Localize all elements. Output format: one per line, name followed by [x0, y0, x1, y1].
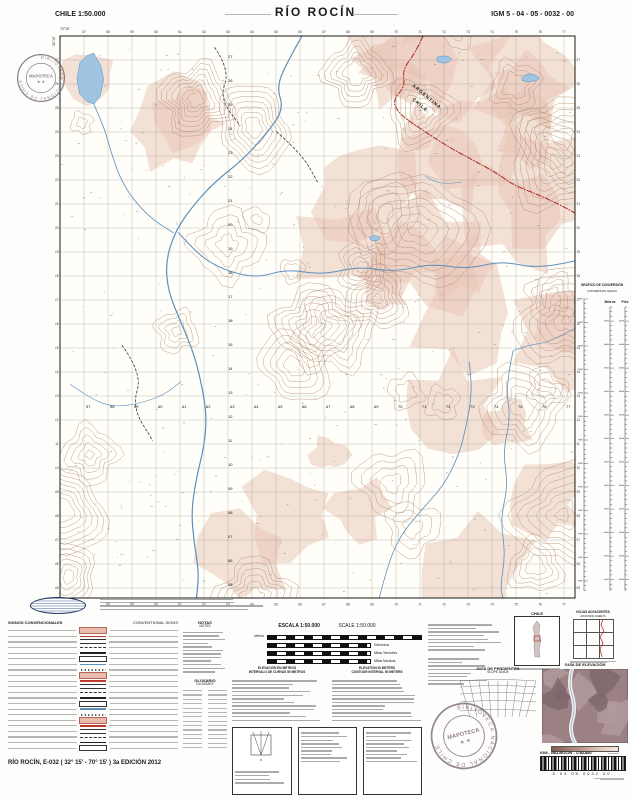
map-speckle — [559, 307, 561, 308]
scale-bars: MetrosKilómetrosMillas TerrestresMillas … — [232, 635, 422, 665]
map-speckle — [456, 486, 458, 487]
grid-label-easting: 61 — [182, 404, 187, 409]
margin-label-bottom: 75 — [514, 603, 518, 607]
placeholder-text-line — [232, 705, 316, 706]
map-speckle — [303, 247, 304, 248]
placeholder-text-line — [428, 649, 485, 650]
margin-label-right: 24 — [577, 130, 581, 134]
grid-label-northing: 12 — [228, 414, 233, 419]
map-speckle — [73, 351, 74, 352]
map-speckle — [135, 143, 137, 144]
grid-label-northing: 10 — [228, 462, 233, 467]
map-speckle — [500, 177, 501, 178]
glossary-title-en: GLOSSARY — [183, 683, 227, 687]
map-speckle — [163, 166, 165, 167]
map-speckle — [309, 267, 311, 268]
map-speckle — [437, 513, 438, 514]
map-sheet-page: { "header": { "country_scale": "CHILE 1:… — [0, 0, 631, 800]
map-speckle — [243, 574, 244, 575]
map-speckle — [234, 139, 236, 140]
map-speckle — [176, 224, 177, 225]
map-speckle — [322, 535, 323, 536]
conversion-tick-label — [604, 344, 609, 345]
map-speckle — [448, 205, 450, 206]
legend-symbol — [80, 664, 106, 666]
map-speckle — [349, 265, 351, 266]
grid-label-northing: 09 — [228, 486, 233, 491]
margin-label-bottom: 73 — [466, 603, 470, 607]
conversion-tick-label — [604, 532, 609, 533]
scale-title-en: SCALE 1:50.000 — [338, 623, 375, 629]
map-speckle — [283, 124, 284, 125]
margin-label-left: 11 — [55, 442, 59, 446]
publisher-note — [100, 596, 300, 613]
map-speckle — [539, 370, 541, 371]
placeholder-text-line — [232, 691, 310, 692]
map-speckle — [478, 186, 480, 187]
placeholder-text-line — [232, 720, 320, 721]
map-speckle — [392, 46, 394, 47]
map-speckle — [495, 73, 496, 74]
map-speckle — [503, 251, 505, 252]
legend-symbol — [80, 729, 106, 734]
placeholder-text-line — [232, 680, 317, 681]
margin-label-left: 20 — [55, 226, 59, 230]
map-speckle — [242, 502, 243, 503]
map-speckle — [343, 591, 345, 592]
placeholder-text-line — [428, 624, 492, 625]
stamp-stars: ★ ★ — [37, 79, 46, 84]
map-speckle — [322, 186, 323, 187]
conversion-tick-label — [604, 579, 609, 580]
margin-label-left: 19 — [55, 250, 59, 254]
map-speckle — [481, 59, 483, 60]
map-speckle — [78, 143, 80, 144]
placeholder-text-line — [301, 761, 340, 762]
map-speckle — [432, 351, 433, 352]
map-speckle — [337, 118, 339, 119]
map-speckle — [61, 164, 63, 165]
margin-label-left: 25 — [55, 106, 59, 110]
map-speckle — [533, 168, 534, 169]
map-speckle — [534, 489, 535, 490]
map-speckle — [250, 188, 251, 189]
map-speckle — [110, 315, 112, 316]
margin-label-right: 26 — [577, 82, 581, 86]
grid-label-northing: 21 — [228, 198, 233, 203]
placeholder-text-line — [301, 747, 342, 748]
map-speckle — [479, 332, 481, 333]
map-speckle — [343, 285, 344, 286]
slope-fan-arc — [460, 679, 536, 681]
map-speckle — [548, 438, 549, 439]
placeholder-text-line — [183, 657, 221, 658]
map-speckle — [387, 304, 388, 305]
map-speckle — [473, 259, 475, 260]
placeholder-text-line — [232, 695, 303, 696]
barcode-block: IGM - RÍO ROCÍN - 1:50.000 5 04 05 0032 … — [540, 750, 630, 780]
topographic-map: ARGENTINACHILE57585960616263646566676869… — [52, 26, 583, 608]
legend-symbol — [80, 742, 106, 744]
margin-label-left: 21 — [55, 202, 59, 206]
map-speckle — [524, 332, 526, 333]
placeholder-text-line — [100, 605, 263, 606]
map-speckle — [473, 589, 474, 590]
conversion-tick-label — [604, 485, 609, 486]
margin-label-top: 59 — [130, 30, 134, 34]
map-speckle — [494, 344, 496, 345]
map-speckle — [210, 491, 212, 492]
map-speckle — [428, 219, 430, 220]
placeholder-text-line — [232, 698, 284, 699]
map-speckle — [297, 112, 299, 113]
glossary-list — [183, 688, 227, 749]
map-speckle — [293, 142, 294, 143]
margin-label-top: 73 — [466, 30, 470, 34]
margin-label-right: 18 — [577, 274, 581, 278]
stamp-center-text: MAPOTECA — [29, 74, 53, 79]
map-speckle — [110, 451, 112, 452]
map-speckle — [387, 191, 389, 192]
map-speckle — [452, 457, 454, 458]
legend-symbol — [80, 684, 106, 689]
signs-symbol-list — [8, 628, 178, 751]
map-speckle — [150, 495, 152, 496]
margin-label-left: 14 — [55, 370, 59, 374]
conversion-tick-label — [604, 461, 609, 462]
slope-fan-line — [505, 681, 508, 717]
map-speckle — [381, 375, 383, 376]
placeholder-text-line — [332, 716, 412, 717]
placeholder-text-line — [332, 684, 400, 685]
map-speckle — [492, 586, 493, 587]
margin-label-left: 08 — [55, 514, 59, 518]
conversion-tick-label — [619, 555, 624, 556]
map-speckle — [269, 315, 270, 316]
map-speckle — [281, 542, 282, 543]
map-speckle — [272, 164, 274, 165]
placeholder-text-line — [301, 754, 331, 755]
margin-label-left: 07 — [55, 538, 59, 542]
map-speckle — [315, 398, 316, 399]
scalebar-row: Metros — [232, 635, 422, 641]
map-speckle — [563, 219, 564, 220]
map-speckle — [281, 192, 283, 193]
map-speckle — [399, 368, 400, 369]
map-speckle — [562, 465, 564, 466]
map-speckle — [138, 89, 140, 90]
map-speckle — [564, 172, 566, 173]
map-speckle — [511, 331, 513, 332]
map-speckle — [192, 69, 194, 70]
margin-label-top: 74 — [490, 30, 494, 34]
grid-label-easting: 69 — [374, 404, 379, 409]
conversion-tick-label — [604, 555, 609, 556]
map-speckle — [176, 539, 178, 540]
map-speckle — [257, 523, 259, 524]
conversion-tick-label — [578, 298, 583, 299]
map-speckle — [393, 339, 395, 340]
map-speckle — [336, 71, 338, 72]
header-note-right — [352, 14, 398, 15]
placeholder-text-line — [428, 642, 501, 643]
scalebar — [267, 635, 422, 641]
margin-label-left: 16 — [55, 322, 59, 326]
placeholder-text-line — [232, 702, 294, 703]
conversion-tick-label — [619, 508, 624, 509]
map-speckle — [385, 148, 387, 149]
map-speckle — [249, 109, 250, 110]
map-speckle — [519, 311, 520, 312]
map-speckle — [456, 119, 457, 120]
placeholder-text-line — [366, 743, 404, 744]
map-speckle — [441, 197, 442, 198]
map-speckle — [279, 194, 281, 195]
legend-symbol — [80, 647, 106, 648]
conversion-graph: Metros Pies — [576, 295, 630, 595]
map-speckle — [125, 140, 127, 141]
map-speckle — [392, 480, 394, 481]
margin-label-right: 27 — [577, 58, 581, 62]
placeholder-text-line — [332, 712, 411, 713]
barcode — [540, 756, 626, 771]
map-speckle — [253, 349, 254, 350]
placeholder-text-line — [183, 653, 221, 654]
map-speckle — [119, 565, 121, 566]
map-speckle — [297, 369, 298, 370]
conversion-tick-label — [619, 367, 624, 368]
map-speckle — [286, 343, 288, 344]
margin-label-left: 10 — [55, 466, 59, 470]
map-speckle — [485, 479, 487, 480]
placeholder-text-line — [332, 687, 402, 688]
map-speckle — [267, 457, 269, 458]
margin-label-top: 61 — [178, 30, 182, 34]
map-speckle — [401, 175, 402, 176]
placeholder-text-line — [366, 732, 411, 733]
margin-label-top: 77 — [562, 30, 566, 34]
placeholder-text-line — [366, 754, 407, 755]
adjacent-subtitle: ADJOINING SHEETS — [570, 615, 616, 618]
map-speckle — [259, 460, 260, 461]
grid-label-northing: 17 — [228, 294, 233, 299]
map-speckle — [189, 194, 190, 195]
map-speckle — [181, 384, 183, 385]
grid-label-easting: 66 — [302, 404, 307, 409]
margin-label-top: 70 — [394, 30, 398, 34]
margin-label-top: 72 — [442, 30, 446, 34]
margin-label-left: 17 — [55, 298, 59, 302]
map-speckle — [196, 492, 198, 493]
map-speckle — [405, 419, 407, 420]
legend-symbol — [80, 697, 106, 699]
map-speckle — [215, 475, 217, 476]
placeholder-text-line — [332, 698, 414, 699]
grid-label-easting: 59 — [134, 404, 139, 409]
map-speckle — [310, 473, 311, 474]
grid-label-easting: 57 — [86, 404, 91, 409]
map-speckle — [212, 355, 214, 356]
grid-label-northing: 13 — [228, 390, 233, 395]
margin-label-right: 23 — [577, 154, 581, 158]
map-speckle — [71, 470, 72, 471]
map-speckle — [265, 260, 266, 261]
map-speckle — [446, 140, 448, 141]
map-speckle — [100, 198, 102, 199]
conventional-signs-block: SIGNOS CONVENCIONALES CONVENTIONAL SIGNS — [8, 620, 178, 751]
conversion-tick-label — [619, 532, 624, 533]
placeholder-text-line — [183, 639, 225, 640]
map-speckle — [284, 553, 286, 554]
map-speckle — [544, 136, 546, 137]
map-speckle — [462, 60, 463, 61]
grid-label-easting: 72 — [446, 404, 451, 409]
map-speckle — [82, 556, 83, 557]
placeholder-text-line — [366, 740, 411, 741]
scalebar — [267, 659, 371, 665]
map-speckle — [403, 322, 404, 323]
map-speckle — [413, 544, 415, 545]
legend-symbol — [79, 717, 107, 724]
map-speckle — [309, 344, 310, 345]
grid-label-northing: 16 — [228, 318, 233, 323]
map-speckle — [121, 505, 122, 506]
map-speckle — [434, 153, 436, 154]
legend-symbol — [80, 725, 106, 727]
placeholder-text-line — [366, 750, 397, 751]
grid-label-northing: 14 — [228, 366, 233, 371]
map-speckle — [415, 302, 417, 303]
grid-label-northing: 24 — [228, 126, 233, 131]
margin-label-bottom: 74 — [490, 603, 494, 607]
map-speckle — [158, 501, 159, 502]
placeholder-text-line — [428, 662, 462, 663]
placeholder-text-line — [332, 709, 383, 710]
map-speckle — [347, 200, 348, 201]
adjacent-sheets-block: HOJAS ADYACENTES ADJOINING SHEETS — [570, 611, 616, 663]
conversion-tick-label — [604, 367, 609, 368]
placeholder-text-line — [100, 602, 234, 603]
library-stamp-top: BIBLIOTECA NACIONAL DE CHILE MAPOTECA ★ … — [15, 52, 67, 104]
map-speckle — [369, 580, 371, 581]
map-speckle — [150, 506, 152, 507]
sheet-code: IGM 5 - 04 - 05 - 0032 - 00 — [491, 10, 574, 19]
grid-label-easting: 76 — [542, 404, 547, 409]
legend-symbol — [80, 737, 106, 738]
margin-label-left: 24 — [55, 130, 59, 134]
placeholder-text-line — [301, 750, 332, 751]
placeholder-text-line — [183, 664, 221, 665]
map-speckle — [95, 504, 96, 505]
map-speckle — [91, 192, 93, 193]
map-speckle — [334, 461, 335, 462]
map-speckle — [115, 542, 116, 543]
margin-label-left: 12 — [55, 418, 59, 422]
margin-label-right: 22 — [577, 178, 581, 182]
conversion-tick-label — [604, 414, 609, 415]
map-speckle — [260, 517, 261, 518]
margin-label-left: 09 — [55, 490, 59, 494]
margin-label-left: 05 — [55, 586, 59, 590]
scalebar-unit-label: Metros — [232, 635, 264, 639]
map-speckle — [113, 313, 114, 314]
placeholder-text-line — [232, 684, 293, 685]
map-speckle — [480, 463, 481, 464]
map-speckle — [374, 424, 376, 425]
legend-symbol-row — [8, 745, 178, 751]
map-speckle — [396, 425, 398, 426]
signs-title: SIGNOS CONVENCIONALES — [8, 620, 62, 625]
grid-label-easting: 73 — [470, 404, 475, 409]
legend-symbol — [80, 636, 106, 638]
map-speckle — [367, 339, 369, 340]
placeholder-text-line — [232, 709, 314, 710]
map-speckle — [245, 314, 246, 315]
margin-label-right: 20 — [577, 226, 581, 230]
map-speckle — [174, 474, 175, 475]
margin-label-left: 13 — [55, 394, 59, 398]
conversion-tick-label — [578, 533, 583, 534]
placeholder-text-line — [183, 660, 211, 661]
map-speckle — [571, 452, 573, 453]
grid-label-easting: 67 — [326, 404, 331, 409]
map-speckle — [131, 169, 132, 170]
margin-label-left: 18 — [55, 274, 59, 278]
placeholder-text-line — [235, 771, 279, 772]
placeholder-text-line — [366, 736, 396, 737]
placeholder-text-line — [332, 705, 385, 706]
map-speckle — [539, 499, 540, 500]
legend-symbol — [79, 745, 107, 751]
conversion-tick-label — [578, 439, 583, 440]
map-speckle — [345, 208, 347, 209]
equivalence-notes-left — [232, 678, 322, 723]
placeholder-text-line — [183, 643, 208, 644]
scale-section: ESCALA 1:50.000 SCALE 1:50.000 MetrosKil… — [232, 614, 422, 800]
map-speckle — [401, 563, 402, 564]
placeholder-text-line — [301, 736, 347, 737]
map-speckle — [506, 266, 507, 267]
map-speckle — [306, 112, 308, 113]
conversion-tick-label — [578, 486, 583, 487]
conversion-tick-label — [619, 414, 624, 415]
map-speckle — [104, 372, 106, 373]
svg-text:★: ★ — [260, 758, 263, 762]
map-speckle — [268, 74, 269, 75]
legend-symbol — [79, 701, 107, 707]
grid-label-northing: 23 — [228, 150, 233, 155]
corner-longitude-label: 70°15' — [60, 27, 70, 31]
placeholder-text-line — [428, 639, 488, 640]
map-speckle — [155, 476, 156, 477]
map-speckle — [281, 443, 282, 444]
map-speckle — [484, 530, 486, 531]
map-speckle — [84, 229, 86, 230]
grid-label-northing: 18 — [228, 270, 233, 275]
map-speckle — [412, 214, 413, 215]
grid-label-northing: 07 — [228, 534, 233, 539]
map-speckle — [231, 140, 233, 141]
map-speckle — [344, 412, 346, 413]
placeholder-text-line — [232, 687, 289, 688]
map-speckle — [401, 293, 402, 294]
map-speckle — [96, 395, 98, 396]
grid-label-northing: 06 — [228, 558, 233, 563]
scalebar — [267, 643, 371, 649]
map-speckle — [478, 172, 480, 173]
map-speckle — [471, 86, 473, 87]
grid-label-easting: 70 — [398, 404, 403, 409]
